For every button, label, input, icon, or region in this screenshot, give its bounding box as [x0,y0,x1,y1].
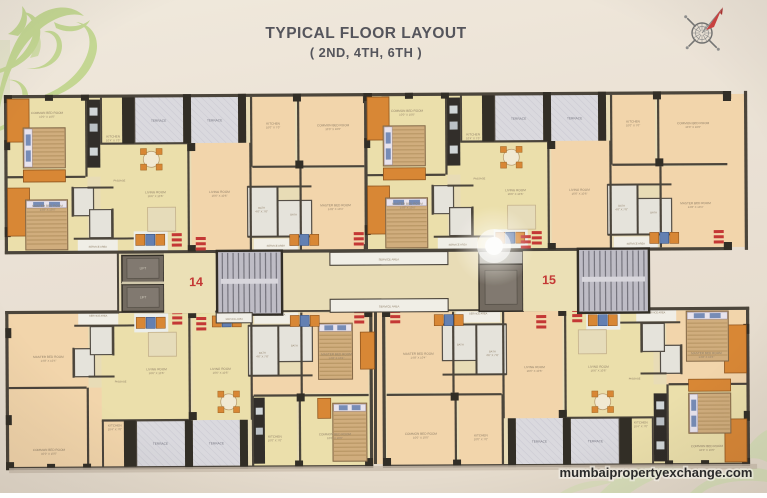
svg-text:mumbaipropertyexchange.com: mumbaipropertyexchange.com [560,465,753,480]
